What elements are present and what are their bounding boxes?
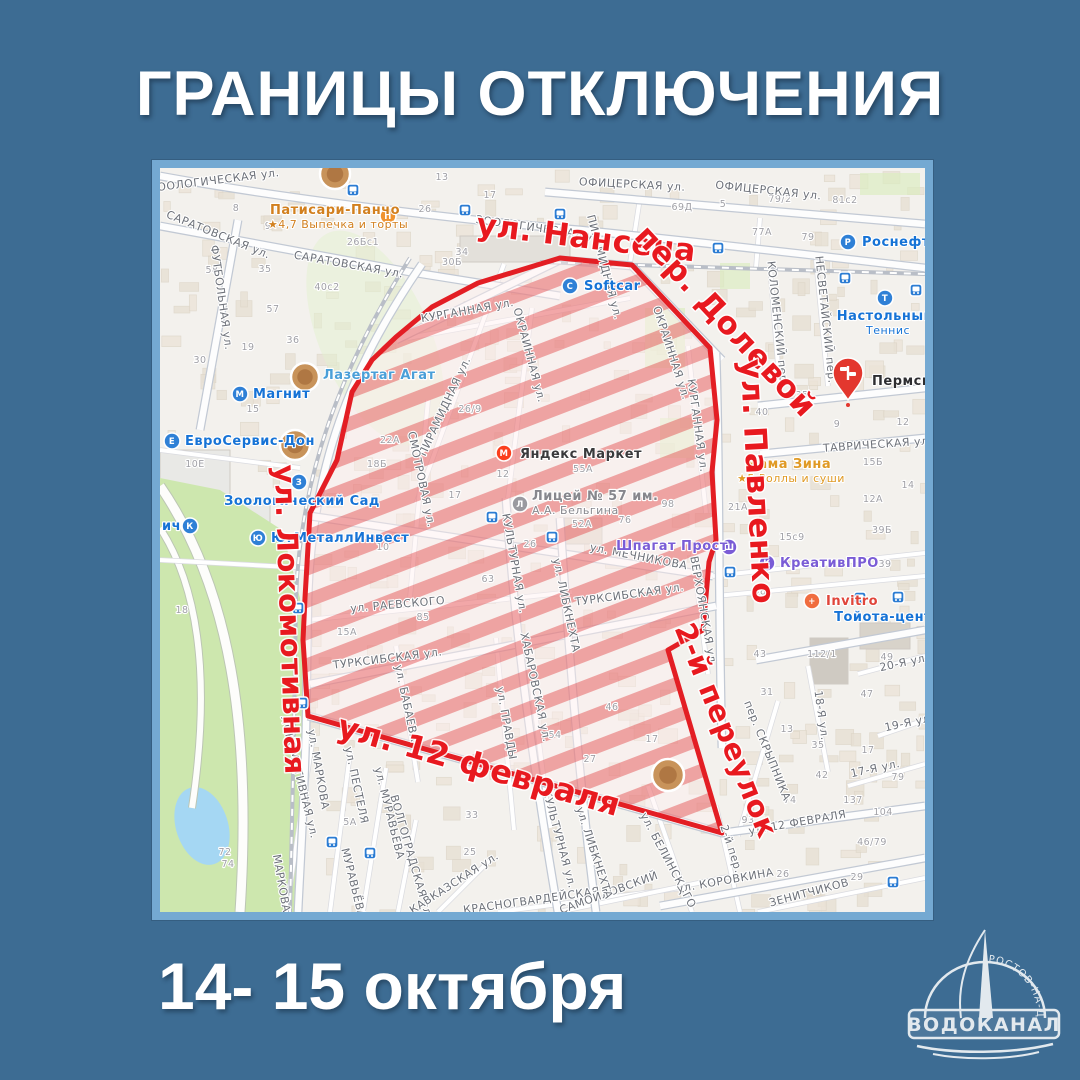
poi-icon: С bbox=[562, 278, 578, 294]
logo-city-text: РОСТОВ-НА-ДОНУ bbox=[903, 922, 1045, 1018]
building bbox=[871, 280, 877, 294]
house-number: 35 bbox=[258, 264, 271, 275]
house-number: 39Б bbox=[872, 525, 892, 536]
poi-label: ич bbox=[162, 519, 181, 534]
house-number: 26/9 bbox=[458, 404, 481, 415]
building bbox=[779, 755, 793, 762]
poi-label: Патисари-Панчо bbox=[270, 203, 400, 218]
house-number: 69Д bbox=[671, 202, 692, 213]
house-number: 55А bbox=[573, 464, 593, 475]
house-number: 42 bbox=[815, 770, 828, 781]
house-number: 104 bbox=[873, 807, 893, 818]
house-number: 12А bbox=[863, 494, 883, 505]
house-number: 33 bbox=[465, 810, 478, 821]
building bbox=[921, 483, 925, 493]
poi-icon: Е bbox=[164, 433, 180, 449]
logo-sail-icon bbox=[979, 930, 993, 1018]
building bbox=[901, 197, 909, 210]
poi-icon-letter: К bbox=[186, 522, 193, 532]
building bbox=[873, 411, 884, 420]
building bbox=[890, 560, 900, 570]
building bbox=[456, 225, 473, 236]
building bbox=[446, 846, 460, 859]
house-number: 13 bbox=[435, 172, 448, 183]
poi-icon: + bbox=[804, 593, 820, 609]
house-number: 63 bbox=[481, 574, 494, 585]
transit-stop-icon bbox=[839, 272, 851, 284]
house-number: 17 bbox=[448, 490, 461, 501]
building bbox=[786, 593, 798, 607]
building bbox=[798, 283, 805, 296]
house-number: 46/79 bbox=[857, 837, 887, 848]
house-number: 25 bbox=[463, 847, 476, 858]
building bbox=[720, 780, 727, 796]
house-number: 26Бс1 bbox=[347, 237, 379, 248]
building bbox=[627, 826, 641, 842]
building bbox=[219, 193, 235, 199]
house-number: 43 bbox=[753, 649, 766, 660]
building bbox=[864, 511, 871, 521]
house-number: 18 bbox=[175, 605, 188, 616]
building bbox=[270, 374, 290, 384]
building bbox=[161, 269, 168, 282]
house-number: 72 bbox=[218, 847, 231, 858]
house-number: 85 bbox=[416, 612, 429, 623]
poi-label: КреативПРО bbox=[780, 556, 879, 571]
building bbox=[784, 683, 795, 699]
house-number: 31 bbox=[760, 687, 773, 698]
poi-label: Invitro bbox=[826, 594, 878, 609]
building bbox=[810, 433, 819, 444]
green-patch bbox=[860, 173, 920, 195]
house-number: 9 bbox=[834, 419, 841, 430]
house-number: 17 bbox=[483, 190, 496, 201]
building bbox=[917, 736, 924, 751]
transit-stop-icon bbox=[347, 184, 359, 196]
house-number: 22А bbox=[380, 435, 400, 446]
house-number: 98 bbox=[661, 499, 674, 510]
transit-stop-icon bbox=[724, 566, 736, 578]
building bbox=[749, 302, 763, 311]
building bbox=[380, 910, 396, 912]
transit-stop-icon bbox=[546, 531, 558, 543]
building bbox=[809, 377, 821, 385]
poi-sublabel: Теннис bbox=[865, 324, 910, 337]
building bbox=[603, 206, 617, 220]
building bbox=[241, 292, 248, 307]
poi-icon: Р bbox=[840, 234, 856, 250]
building bbox=[885, 685, 900, 696]
building bbox=[916, 781, 925, 788]
building bbox=[785, 418, 794, 432]
house-number: 15 bbox=[246, 404, 259, 415]
house-number: 39 bbox=[878, 559, 891, 570]
house-number: 81с2 bbox=[832, 195, 857, 206]
house-number: 12 bbox=[496, 469, 509, 480]
date-range: 14- 15 октября bbox=[158, 948, 626, 1024]
poi-icon-letter: Ю bbox=[253, 534, 263, 544]
house-number: 30 bbox=[193, 355, 206, 366]
building bbox=[806, 724, 817, 734]
house-number: 35 bbox=[811, 740, 824, 751]
house-number: 46 bbox=[605, 702, 618, 713]
house-number: 137 bbox=[843, 795, 863, 806]
poi-icon-letter: М bbox=[500, 449, 509, 459]
outage-map: 8926Бс130Б1317263440с257583569Д579/281с2… bbox=[160, 168, 925, 912]
poi-label: Магнит bbox=[253, 387, 310, 402]
house-number: 26 bbox=[418, 204, 431, 215]
building bbox=[866, 649, 879, 661]
building bbox=[162, 336, 181, 347]
building bbox=[824, 175, 835, 182]
poi-sublabel: А.А. Бельгина bbox=[532, 504, 619, 517]
house-number: 10Е bbox=[185, 459, 205, 470]
poi-icon: К bbox=[182, 518, 198, 534]
house-number: 52А bbox=[572, 519, 592, 530]
poi-label: Шпагат Прост bbox=[616, 539, 728, 554]
house-number: 29 bbox=[850, 872, 863, 883]
svg-text:РОСТОВ-НА-ДОНУ: РОСТОВ-НА-ДОНУ bbox=[903, 922, 1045, 1018]
building bbox=[913, 399, 925, 414]
poi-sublabel: ★4,7 Выпечка и торты bbox=[268, 218, 408, 231]
house-number: 13 bbox=[780, 724, 793, 735]
transit-stop-icon bbox=[364, 847, 376, 859]
poi-icon-letter: Л bbox=[516, 500, 524, 510]
house-number: 8 bbox=[233, 203, 240, 214]
poi-icon: М bbox=[232, 386, 248, 402]
building bbox=[901, 251, 918, 261]
poi-icon: М bbox=[496, 445, 512, 461]
house-number: 79 bbox=[801, 232, 814, 243]
building bbox=[838, 287, 845, 296]
building bbox=[901, 753, 910, 766]
house-number: 5А bbox=[343, 817, 357, 828]
poi-label: Лазертаг Агат bbox=[323, 368, 436, 383]
house-number: 76 bbox=[618, 515, 631, 526]
house-number: 74 bbox=[221, 859, 234, 870]
transit-stop-icon bbox=[486, 511, 498, 523]
building bbox=[907, 346, 924, 354]
outage-poster: ГРАНИЦЫ ОТКЛЮЧЕНИЯ 8926Бс130Б1317263440с… bbox=[0, 0, 1080, 1080]
house-number: 26 bbox=[523, 539, 536, 550]
transit-stop-icon bbox=[892, 591, 904, 603]
building bbox=[900, 702, 916, 710]
building bbox=[793, 316, 811, 331]
house-number: 27 bbox=[583, 754, 596, 765]
house-number: 112/1 bbox=[807, 649, 837, 660]
poi-icon: Ю bbox=[250, 530, 266, 546]
house-number: 47 bbox=[860, 689, 873, 700]
building bbox=[444, 807, 461, 820]
map-frame: 8926Бс130Б1317263440с257583569Д579/281с2… bbox=[152, 160, 933, 920]
poi-icon-letter: + bbox=[808, 597, 816, 607]
house-number: 17 bbox=[861, 745, 874, 756]
poi-label: Пермска bbox=[872, 374, 925, 389]
house-number: 34 bbox=[455, 247, 468, 258]
house-number: 12 bbox=[896, 417, 909, 428]
poi-label: Тойота-центр bbox=[834, 610, 925, 625]
transit-stop-icon bbox=[910, 284, 922, 296]
building bbox=[555, 170, 569, 182]
building bbox=[745, 840, 754, 849]
logo-wave-1 bbox=[917, 1044, 1053, 1052]
poster-title: ГРАНИЦЫ ОТКЛЮЧЕНИЯ bbox=[0, 58, 1080, 130]
building bbox=[907, 559, 914, 566]
building bbox=[436, 777, 451, 785]
house-number: 40с2 bbox=[314, 282, 339, 293]
poi-icon-letter: Е bbox=[169, 437, 175, 447]
poi-icon: Т bbox=[877, 290, 893, 306]
building bbox=[880, 343, 897, 354]
building bbox=[506, 189, 523, 195]
vodokanal-logo: РОСТОВ-НА-ДОНУ ВОДОКАНАЛ bbox=[903, 922, 1065, 1074]
building bbox=[851, 734, 861, 747]
house-number: 79 bbox=[891, 772, 904, 783]
transit-stop-icon bbox=[712, 242, 724, 254]
house-number: 15А bbox=[337, 627, 357, 638]
building bbox=[217, 390, 227, 399]
building bbox=[911, 531, 918, 543]
poi-label: Яндекс Маркет bbox=[520, 447, 642, 462]
poi-label: Роснефть bbox=[862, 235, 925, 250]
building bbox=[397, 232, 411, 246]
poi-icon-letter: М bbox=[236, 390, 245, 400]
building bbox=[806, 848, 819, 865]
poi-icon-letter: Т bbox=[882, 294, 888, 304]
building bbox=[831, 496, 840, 507]
building bbox=[815, 233, 828, 246]
logo-org-text: ВОДОКАНАЛ bbox=[907, 1014, 1061, 1036]
poi-label: Настольный bbox=[837, 309, 925, 324]
poi-label: Softcar bbox=[584, 279, 641, 294]
house-number: 36 bbox=[286, 335, 299, 346]
poi-icon-letter: Р bbox=[845, 238, 852, 248]
building bbox=[840, 751, 856, 761]
poi-label: ЕвроСервис-Дон bbox=[185, 434, 315, 449]
house-number: 77А bbox=[752, 227, 772, 238]
house-number: 26 bbox=[776, 869, 789, 880]
house-number: 5 bbox=[720, 199, 727, 210]
house-number: 30Б bbox=[442, 257, 462, 268]
poi-icon: Л bbox=[512, 496, 528, 512]
building bbox=[620, 864, 627, 875]
poi-icon-letter: С bbox=[567, 282, 574, 292]
poi-label: Лицей № 57 им. bbox=[532, 489, 658, 504]
house-number: 18Б bbox=[367, 459, 387, 470]
transit-stop-icon bbox=[887, 876, 899, 888]
building bbox=[180, 283, 199, 292]
building bbox=[386, 765, 404, 772]
house-number: 19 bbox=[241, 342, 254, 353]
house-number: 14 bbox=[901, 480, 914, 491]
house-number: 57 bbox=[266, 304, 279, 315]
house-number: 17 bbox=[645, 734, 658, 745]
building bbox=[174, 306, 190, 313]
house-number: 15Б bbox=[863, 457, 883, 468]
building bbox=[898, 584, 909, 590]
house-number: 15с9 bbox=[779, 532, 804, 543]
transit-stop-icon bbox=[459, 204, 471, 216]
building bbox=[189, 295, 196, 311]
transit-stop-icon bbox=[326, 836, 338, 848]
